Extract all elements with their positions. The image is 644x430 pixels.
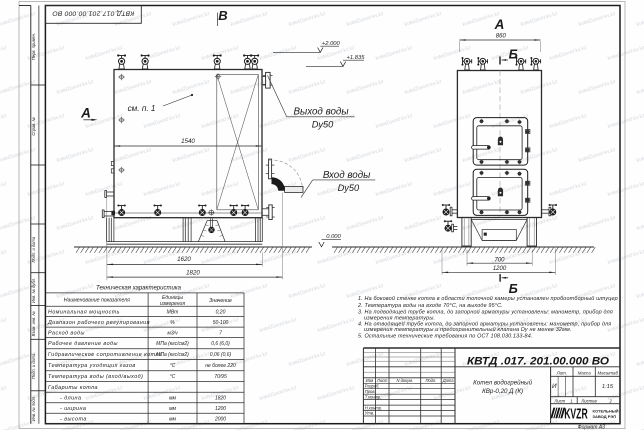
svg-text:Изм: Изм (366, 378, 374, 383)
svg-text:А: А (494, 17, 505, 32)
svg-text:Температура уходящих газов: Температура уходящих газов (48, 363, 136, 369)
svg-text:А: А (80, 106, 91, 121)
svg-text:Разраб.: Разраб. (365, 384, 380, 389)
svg-text:7: 7 (219, 330, 222, 336)
svg-text:Dу50: Dу50 (312, 119, 334, 129)
svg-text:МВт: МВт (167, 309, 179, 315)
svg-text:Перв. примен.: Перв. примен. (31, 33, 36, 60)
svg-text:Масштаб: Масштаб (597, 371, 618, 376)
svg-text:В: В (218, 8, 227, 23)
svg-text:0,6 (6,0): 0,6 (6,0) (211, 341, 230, 347)
svg-text:измерения: измерения (160, 301, 185, 307)
svg-text:Т.контр.: Т.контр. (365, 394, 382, 399)
svg-text:КВТД .017. 201.00.000 ВО: КВТД .017. 201.00.000 ВО (467, 355, 609, 367)
svg-text:0,20: 0,20 (216, 309, 226, 315)
svg-text:МПа (кгс/см2): МПа (кгс/см2) (156, 341, 189, 347)
svg-text:мм: мм (169, 406, 176, 412)
svg-text:Инв. № подл.: Инв. № подл. (31, 396, 36, 421)
svg-text:860: 860 (496, 33, 507, 39)
svg-text:Формат А3: Формат А3 (578, 424, 606, 430)
svg-text:- длина: - длина (60, 396, 81, 402)
svg-text:Гидравлическое сопротивление к: Гидравлическое сопротивление котла (48, 352, 162, 358)
svg-text:мм: мм (169, 396, 176, 402)
svg-text:Дата: Дата (442, 378, 455, 383)
svg-text:- высота: - высота (60, 416, 87, 422)
svg-text:Пров.: Пров. (365, 389, 376, 394)
svg-text:Инв. № дубл.: Инв. № дубл. (31, 278, 36, 303)
svg-text:1540: 1540 (181, 138, 195, 145)
svg-text:70/95: 70/95 (214, 374, 227, 380)
svg-text:%: % (170, 320, 175, 326)
svg-text:Диапазон рабочего регулировани: Диапазон рабочего регулирования (47, 320, 150, 326)
svg-text:ЗАВОД РЭП: ЗАВОД РЭП (593, 414, 617, 419)
svg-text:Н.контр.: Н.контр. (365, 405, 382, 410)
svg-text:0.000: 0.000 (326, 234, 341, 240)
svg-text:1: 1 (570, 398, 572, 403)
svg-text:Dу50: Dу50 (338, 183, 360, 193)
svg-text:м3/ч: м3/ч (167, 330, 178, 336)
svg-text:1620: 1620 (177, 256, 191, 263)
svg-text:1:15: 1:15 (602, 384, 614, 390)
svg-text:Температура воды (вход/выход): Температура воды (вход/выход) (48, 374, 143, 380)
svg-text:И: И (552, 383, 557, 390)
svg-text:Расход воды: Расход воды (48, 330, 85, 336)
svg-text:5. Остальные технические треб: 5. Остальные технические требования по О… (358, 333, 533, 339)
svg-text:Вход воды: Вход воды (323, 170, 371, 181)
svg-text:Лист: Лист (376, 378, 388, 383)
svg-text:Справ. №: Справ. № (31, 116, 36, 135)
svg-text:КОТЕЛЬНЫЙ: КОТЕЛЬНЫЙ (593, 408, 619, 413)
svg-text:Значение: Значение (209, 298, 232, 304)
svg-text:1200: 1200 (493, 266, 507, 272)
svg-text:Рабочее давление воды: Рабочее давление воды (48, 341, 118, 347)
svg-text:Выход воды: Выход воды (293, 106, 349, 117)
svg-text:°С: °С (170, 374, 176, 380)
svg-text:не более 220: не более 220 (205, 363, 236, 369)
svg-text:КВр-0,20 Д (К): КВр-0,20 Д (К) (482, 388, 523, 395)
svg-text:1. На боковой стенке котла в: 1. На боковой стенке котла в области топ… (358, 295, 618, 302)
svg-text:Техническая характеристика: Техническая характеристика (96, 286, 182, 292)
svg-text:50-100: 50-100 (213, 320, 229, 326)
svg-text:Б: Б (509, 46, 518, 61)
svg-text:КВТД.017.201.00.000 ВО: КВТД.017.201.00.000 ВО (52, 10, 134, 17)
svg-text:Взам. инв. №: Взам. инв. № (31, 310, 36, 336)
svg-text:Габариты котла: Габариты котла (48, 385, 98, 391)
svg-text:N докум.: N докум. (397, 378, 414, 383)
svg-text:Лит.: Лит. (556, 371, 567, 376)
svg-text:2. Температура воды на входе: 2. Температура воды на входе 70°С, на вы… (357, 303, 503, 309)
svg-text:- ширина: - ширина (60, 406, 86, 412)
svg-text:3. На подводящей трубе котла,: 3. На подводящей трубе котла, до запорно… (358, 308, 613, 315)
svg-text:Утв.: Утв. (365, 411, 374, 416)
svg-text:Номинальная мощность: Номинальная мощность (48, 309, 120, 315)
svg-text:Подп.: Подп. (425, 378, 436, 383)
svg-text:Наименование показателя: Наименование показателя (64, 298, 130, 304)
svg-text:+2.000: +2.000 (322, 41, 341, 47)
svg-text:KVZR: KVZR (564, 406, 588, 422)
svg-text:см. п. 1: см. п. 1 (128, 104, 156, 113)
svg-text:700: 700 (494, 257, 505, 263)
svg-text:измерения температуры и предох: измерения температуры и предохранительны… (364, 326, 572, 333)
svg-text:Б: Б (509, 281, 518, 296)
svg-text:2000: 2000 (214, 416, 226, 422)
svg-text:Котел водогрейный: Котел водогрейный (473, 380, 532, 387)
svg-text:Лист: Лист (553, 398, 565, 403)
svg-text:Листов: Листов (580, 398, 597, 403)
svg-text:+1.835: +1.835 (347, 55, 366, 61)
svg-text:Подп. и дата: Подп. и дата (31, 236, 36, 262)
svg-text:1200: 1200 (215, 406, 226, 412)
svg-text:Подп. и дата: Подп. и дата (31, 353, 36, 379)
svg-text:мм: мм (169, 416, 176, 422)
svg-text:1820: 1820 (215, 396, 226, 402)
svg-text:°С: °С (170, 363, 176, 369)
svg-text:0,06 (0,6): 0,06 (0,6) (210, 352, 232, 358)
svg-text:Масса: Масса (578, 371, 592, 376)
svg-text:МПа (кгс/см2): МПа (кгс/см2) (156, 352, 189, 358)
svg-text:1820: 1820 (186, 270, 200, 277)
